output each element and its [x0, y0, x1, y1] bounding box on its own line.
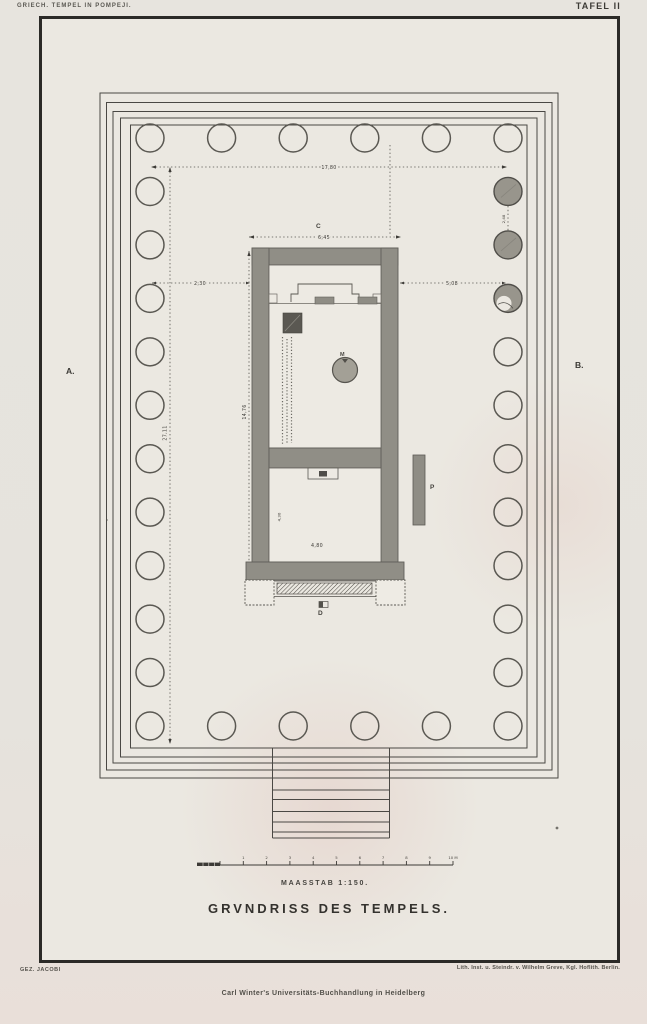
footer-publisher: Carl Winter's Universitäts-Buchhandlung …: [0, 990, 647, 997]
anta-west: [245, 580, 274, 605]
column-preserved: [494, 231, 522, 259]
cella-west-wall: [252, 248, 269, 562]
paper-speck: [556, 827, 559, 830]
dim-pronaos-depth: 4,30: [277, 512, 282, 521]
dim-east-gap: 5,08: [446, 281, 458, 287]
dim-peristyle-width: 17,80: [321, 165, 336, 171]
pronaos-block-core: [319, 471, 327, 477]
column-preserved: [494, 177, 522, 205]
threshold-hatching: [277, 583, 372, 594]
plate-drawing: A. B. C D M P 17,80 27,11 14,76 6,45 2,3…: [0, 0, 647, 1024]
anta-east: [376, 580, 405, 605]
footer-lithographer: Lith. Inst. u. Steindr. v. Wilhelm Greve…: [457, 965, 620, 971]
pronaos-interior: [269, 468, 381, 562]
section-marker-a: A.: [66, 366, 75, 376]
section-marker-c: C: [316, 223, 321, 230]
cella-north-wall: [252, 248, 398, 265]
section-marker-b: B.: [575, 360, 584, 370]
section-marker-d: D: [318, 610, 323, 617]
label-pillar: P: [430, 484, 435, 491]
scale-label: MAASSTAB 1:150.: [281, 880, 369, 887]
dim-peristyle-length: 27,11: [163, 425, 169, 440]
partition-block: [358, 297, 377, 304]
dim-column-axis-gap: 2,48: [501, 214, 506, 223]
scale-tick-label: 10 M: [448, 855, 457, 860]
dim-cella-length: 14,76: [242, 404, 248, 419]
column-preserved: [494, 284, 522, 312]
header-series-title: GRIECH. TEMPEL IN POMPEJI.: [17, 3, 132, 9]
header-plate-number: TAFEL II: [576, 1, 621, 11]
footer-draughtsman: GEZ. JACOBI: [20, 967, 61, 973]
dim-cella-width: 6,45: [318, 235, 330, 241]
cella-interior: [269, 265, 381, 448]
label-statue-base: M: [340, 352, 345, 358]
pronaos-sill: [246, 562, 404, 580]
pillar-bar: [413, 455, 425, 525]
cella-east-wall: [381, 248, 398, 562]
cella-building: [245, 248, 405, 605]
plate-page: A. B. C D M P 17,80 27,11 14,76 6,45 2,3…: [0, 0, 647, 1024]
dim-west-gap: 2,30: [194, 281, 206, 287]
partition-block: [315, 297, 334, 304]
cross-wall: [269, 448, 381, 468]
dim-pronaos-width: 4,80: [311, 543, 323, 549]
wall-notch-west: [269, 294, 277, 303]
plate-title: GRVNDRISS DES TEMPELS.: [208, 901, 450, 916]
